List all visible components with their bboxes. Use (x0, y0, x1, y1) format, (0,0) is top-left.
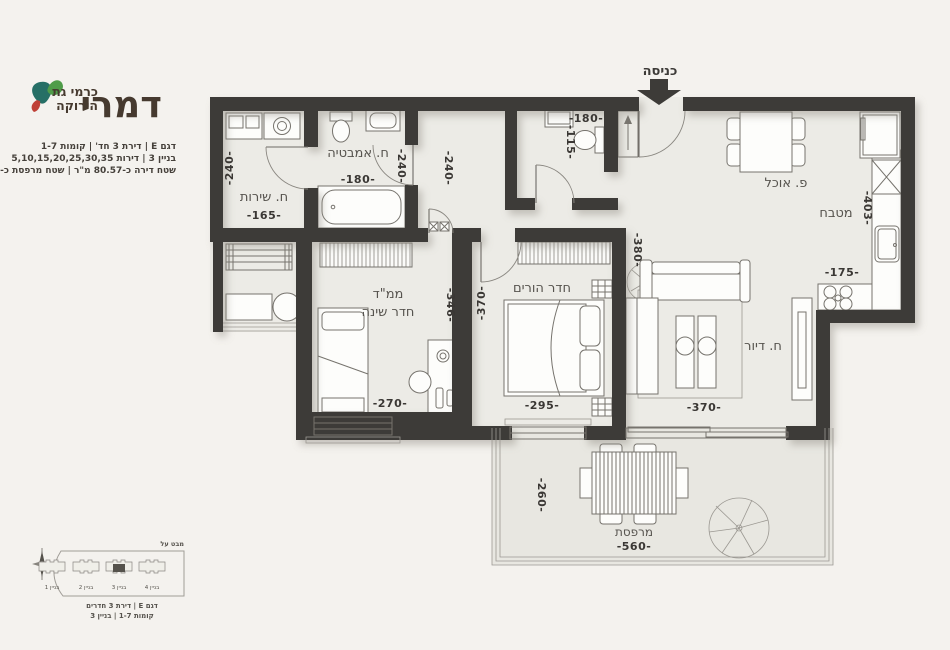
dim-corridor-height: -240- (442, 151, 455, 186)
label-master: חדר הורים (513, 281, 571, 296)
site-building-1-label: בניין 1 (45, 585, 60, 591)
outdoor-chair (676, 468, 688, 498)
washing-machine (264, 113, 300, 139)
site-caption-1: דגם E | דירת 3 חדרים (86, 602, 158, 611)
toilet-bowl (333, 120, 350, 142)
pillow (580, 306, 600, 346)
project-info-line3: שטח דירה כ-80.57 מ"ר | שטח מרפסת כ-14.56… (0, 166, 176, 176)
tv-unit (792, 298, 812, 400)
project-info-line1: דגם E | דירת 3 חד' | קומות 1-7 (41, 142, 176, 152)
label-bathroom: ח. אמבטיה (327, 146, 389, 161)
label-mamad-2: חדר שינה (362, 305, 415, 320)
dim-service-height: -240- (223, 151, 236, 186)
ac-unit (226, 294, 272, 320)
nightstand (592, 280, 612, 298)
outdoor-table (592, 452, 676, 514)
floorplan-canvas: דמרי כרמי גת הירוקה דגם E | דירת 3 חד' |… (0, 0, 950, 650)
master-wardrobe (518, 242, 610, 264)
dim-bathroom-height: -240- (395, 149, 408, 184)
dim-service-width: -165- (247, 209, 282, 222)
dim-master-width: -295- (525, 399, 560, 412)
dim-balcony-height: -260- (535, 478, 548, 513)
dining-table (740, 112, 792, 172)
dim-bathroom-width: -180- (341, 173, 376, 186)
site-plan: מבט על בניין 1 בניין 2 בניין 3 בניין 4 ד… (32, 540, 184, 621)
brand-tagline-1: כרמי גת (52, 84, 98, 99)
dim-kitchen-height: -403- (861, 191, 874, 226)
dim-wc-width: -180- (569, 112, 604, 125)
single-bed (318, 308, 368, 418)
dim-mamad-height: -346- (444, 288, 457, 323)
site-view-label: מבט על (160, 540, 184, 548)
dim-balcony-width: -560- (617, 540, 652, 553)
dim-master-height-right: -380- (631, 233, 644, 268)
label-kitchen: מטבח (819, 206, 852, 221)
site-building-4 (139, 560, 165, 573)
entrance-arrow-icon (650, 79, 668, 90)
dim-kitchen-width: -175- (825, 266, 860, 279)
fridge (860, 112, 900, 158)
site-building-3-highlighted (106, 560, 132, 573)
label-dining: פ. אוכל (765, 176, 808, 191)
entrance-label: כניסה (643, 64, 678, 79)
site-building-2-label: בניין 2 (79, 585, 94, 591)
outdoor-chair (580, 468, 592, 498)
site-caption-2: קומות 1-7 | בניין 3 (90, 612, 154, 621)
brand-logo: דמרי כרמי גת הירוקה (32, 80, 162, 126)
desk-chair (409, 371, 431, 393)
label-balcony: מרפסת (615, 525, 653, 539)
pillow (580, 350, 600, 390)
label-service-room: ח. שירות (240, 190, 288, 205)
nightstand (592, 398, 612, 416)
project-info-line2: בניין 3 | דירות 5,10,15,20,25,30,35 (11, 154, 176, 164)
dim-living-width: -370- (687, 401, 722, 414)
project-info: דגם E | דירת 3 חד' | קומות 1-7 בניין 3 |… (0, 142, 177, 176)
site-building-4-label: בניין 4 (145, 585, 160, 591)
label-living: ח. דיור (744, 339, 782, 354)
dim-wc-height: -115- (564, 125, 577, 160)
brand-tagline-2: הירוקה (56, 98, 98, 113)
label-mamad-1: ממ"ד (373, 287, 404, 302)
site-building-1 (39, 560, 65, 573)
site-building-3-label: בניין 3 (112, 585, 127, 591)
site-building-2 (73, 560, 99, 573)
dim-master-height-left: -370- (475, 286, 488, 321)
dim-mamad-width: -270- (373, 397, 408, 410)
logo-bird-body-red-icon (32, 100, 41, 112)
mamad-wardrobe (320, 243, 412, 267)
